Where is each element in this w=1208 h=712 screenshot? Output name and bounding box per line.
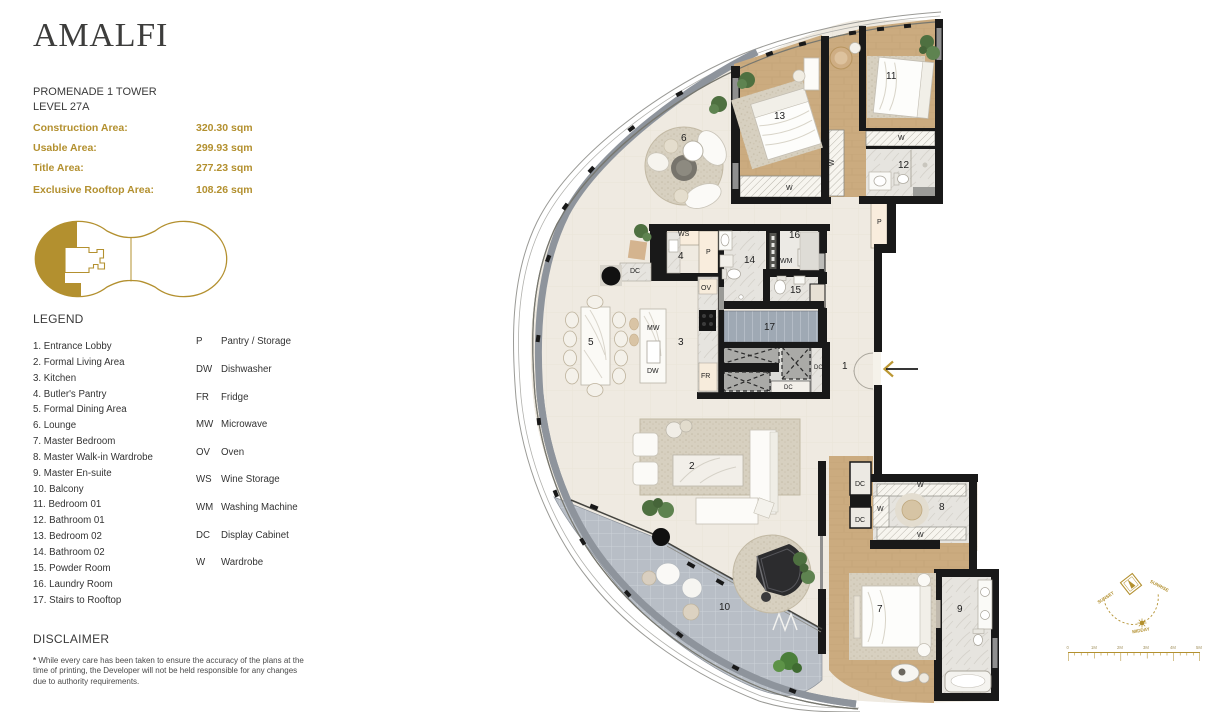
svg-text:SUNSET: SUNSET: [1097, 590, 1116, 604]
svg-text:DC: DC: [784, 385, 793, 391]
svg-text:9: 9: [957, 604, 963, 615]
svg-text:1M: 1M: [1091, 645, 1097, 650]
svg-text:4: 4: [678, 251, 684, 262]
svg-text:8: 8: [939, 502, 945, 513]
svg-text:W: W: [877, 506, 884, 513]
svg-text:1: 1: [842, 361, 848, 372]
svg-text:W: W: [898, 135, 905, 142]
svg-text:14: 14: [744, 255, 756, 266]
svg-text:W: W: [829, 159, 836, 166]
svg-text:MW: MW: [647, 325, 660, 332]
svg-text:5M: 5M: [1196, 645, 1202, 650]
svg-text:MIDDAY: MIDDAY: [1132, 626, 1150, 634]
svg-text:17: 17: [764, 322, 776, 333]
svg-text:2: 2: [689, 461, 695, 472]
svg-text:6: 6: [681, 133, 687, 144]
svg-text:12: 12: [898, 160, 910, 171]
svg-text:13: 13: [774, 111, 786, 122]
svg-text:DC: DC: [855, 481, 865, 488]
svg-text:0: 0: [1067, 645, 1070, 650]
svg-text:10: 10: [719, 602, 731, 613]
svg-text:WS: WS: [678, 231, 690, 238]
svg-text:2M: 2M: [1117, 645, 1123, 650]
svg-text:DC: DC: [630, 268, 640, 275]
svg-text:16: 16: [789, 230, 801, 241]
svg-text:3M: 3M: [1143, 645, 1149, 650]
svg-text:DC: DC: [855, 517, 865, 524]
svg-text:3: 3: [678, 337, 684, 348]
svg-text:SUNRISE: SUNRISE: [1149, 579, 1169, 593]
svg-text:W: W: [917, 532, 924, 539]
svg-text:DC: DC: [814, 365, 823, 371]
svg-text:7: 7: [877, 604, 883, 615]
svg-text:P: P: [877, 219, 882, 226]
svg-text:W: W: [917, 482, 924, 489]
svg-text:11: 11: [886, 71, 897, 82]
svg-text:FR: FR: [701, 373, 710, 380]
svg-text:DW: DW: [647, 368, 659, 375]
svg-text:4M: 4M: [1170, 645, 1176, 650]
svg-text:WM: WM: [780, 258, 793, 265]
svg-text:15: 15: [790, 285, 802, 296]
svg-text:5: 5: [588, 337, 594, 348]
svg-text:W: W: [786, 185, 793, 192]
svg-text:P: P: [706, 249, 711, 256]
svg-text:OV: OV: [701, 285, 711, 292]
